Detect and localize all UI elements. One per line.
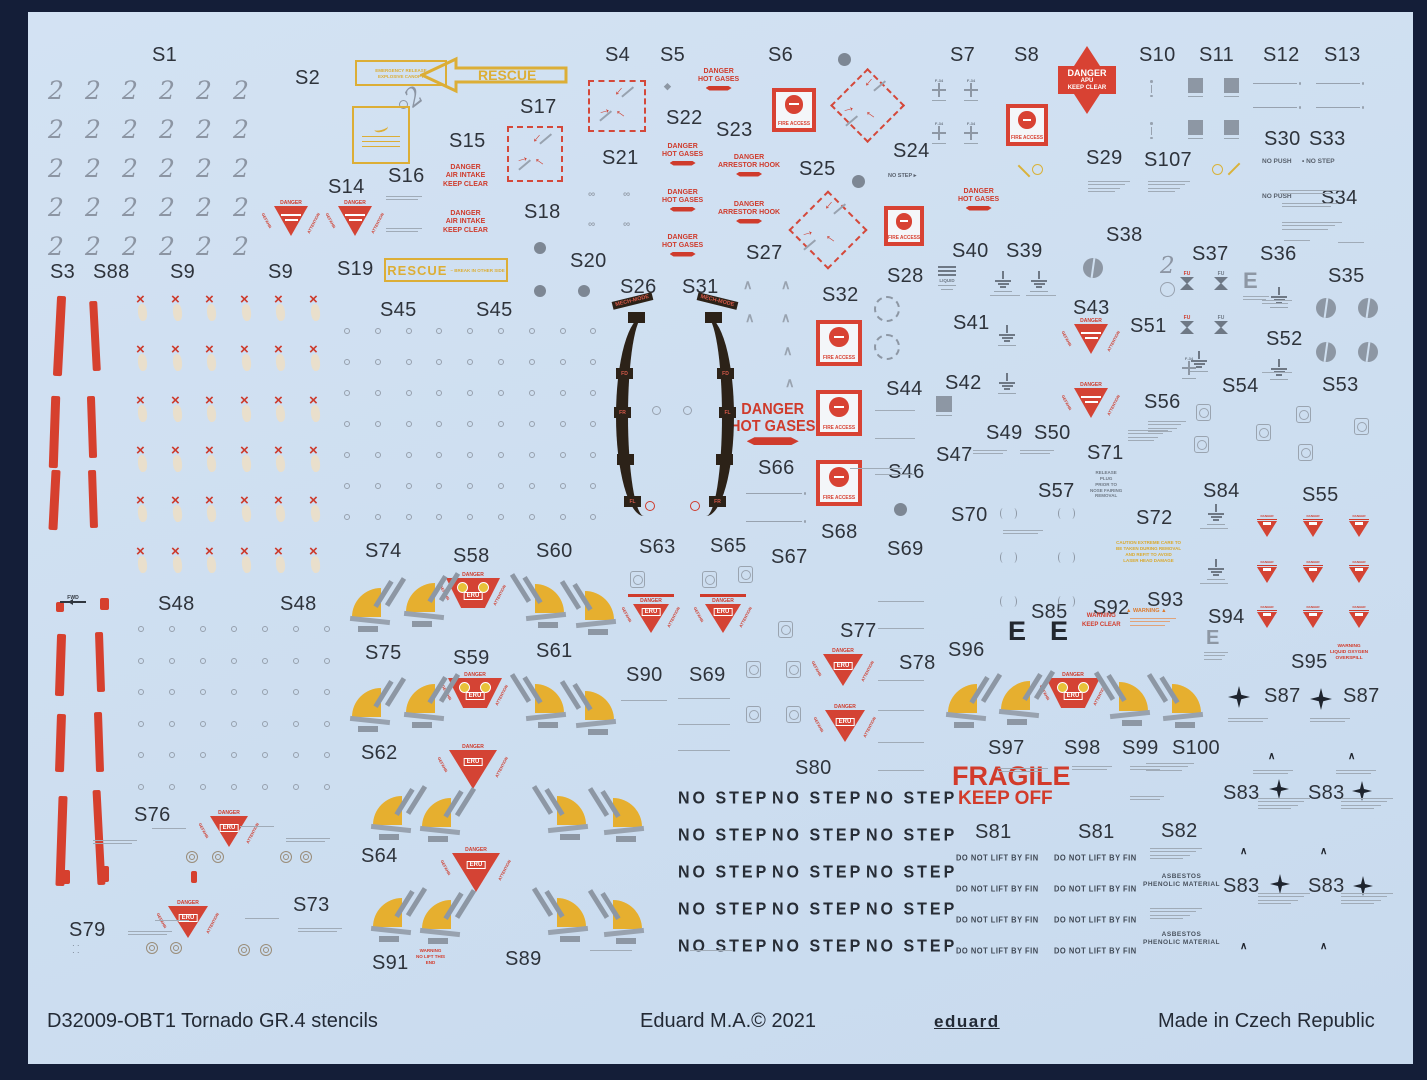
seat-warning-group: [580, 786, 644, 842]
earth-ground-symbol: [1207, 558, 1225, 580]
glyph-marker: ∧: [1320, 841, 1327, 859]
danger-text-stencil: DANGERHOT GASES: [730, 402, 815, 445]
fire-access-marker: FIRE ACCESS: [884, 206, 924, 246]
split-circle-symbol: [1316, 342, 1336, 362]
stencil-text: ▲ WARNING ▲: [1126, 608, 1167, 615]
stencil-text: WARNINGLIQUID OXYGENOVERSPILL: [1330, 644, 1368, 663]
gray-square-marker: [1224, 78, 1239, 97]
stencil-text: NO PUSH: [1262, 158, 1292, 166]
fuel-cross-symbol: F-34: [932, 121, 946, 144]
glyph-marker: ∞: [623, 214, 630, 232]
red-stripe: [100, 598, 109, 610]
valve-outline-symbol: [786, 706, 801, 723]
micro-text-lines: [1148, 181, 1190, 194]
ring-marker: [683, 406, 692, 415]
split-circle-symbol: [1358, 342, 1378, 362]
micro-text-lines: [1310, 718, 1350, 725]
danger-ejection-triangle: DANGERGEFAHRATTENTION: [1068, 318, 1114, 354]
bracket-pair-symbol: [1000, 596, 1017, 607]
micro-text-lines: [286, 838, 330, 845]
line-dot-marker: [1316, 82, 1364, 85]
red-stripe: [55, 296, 64, 376]
valve-outline-symbol: [1256, 424, 1271, 441]
bracket-pair-symbol: [1058, 552, 1075, 563]
star-marker: [1270, 874, 1290, 894]
fwd-arrow: FWD: [60, 595, 86, 603]
split-circle-symbol: [1316, 298, 1336, 318]
danger-text-stencil: DANGERAIR INTAKEKEEP CLEAR: [443, 164, 488, 189]
fire-access-marker: FIRE ACCESS: [772, 88, 816, 132]
star-marker: [1228, 686, 1250, 708]
micro-text-lines: [1282, 222, 1342, 232]
dash-dot-column: [1150, 122, 1153, 139]
line-dot-marker: [746, 520, 806, 523]
gray-square-marker: [1188, 120, 1203, 139]
line-dot-marker: [1253, 82, 1301, 85]
mini-eru-triangle: DANGER: [1256, 514, 1278, 537]
target-ring-marker: [212, 851, 224, 863]
dashed-ring-symbol: [874, 334, 900, 360]
target-ring-marker: [300, 851, 312, 863]
micro-text-lines: [850, 468, 902, 471]
micro-text-lines: [678, 724, 730, 727]
svg-text:RESCUE: RESCUE: [478, 67, 536, 83]
micro-text-lines: [1146, 763, 1194, 773]
micro-text-lines: [240, 826, 274, 829]
micro-text-lines: [152, 828, 186, 831]
micro-text-lines: [1280, 190, 1342, 197]
ring-marker: [1160, 282, 1175, 297]
micro-text-lines: [245, 918, 279, 921]
fire-access-marker: FIRE ACCESS: [1006, 104, 1048, 146]
micro-text-lines: [690, 950, 732, 953]
ring-marker: [645, 501, 655, 511]
micro-text-lines: [1284, 240, 1310, 243]
danger-text-stencil: DANGERHOT GASES: [958, 188, 999, 211]
glyph-marker: ∧: [781, 309, 791, 327]
micro-text-lines: [1228, 718, 1268, 725]
origin-text: Made in Czech Republic: [1158, 1010, 1375, 1033]
micro-text-lines: [1243, 296, 1269, 303]
glyph-marker: ∞: [588, 214, 595, 232]
stencil-text: 2: [1160, 252, 1175, 281]
glyph-marker: ∧: [785, 374, 795, 392]
glyph-marker: ∧: [1348, 746, 1355, 764]
slash-marker: [1016, 170, 1032, 172]
valve-outline-symbol: [1194, 436, 1209, 453]
seat-warning-group: [420, 888, 484, 944]
star-marker: [1269, 779, 1289, 799]
danger-eru-triangle: DANGERGEFAHRATTENTIONERU: [447, 847, 505, 892]
valve-outline-symbol: [1296, 406, 1311, 423]
micro-text-lines: [1200, 528, 1228, 531]
seat-warning-group: [552, 579, 616, 635]
micro-text-lines: [1150, 908, 1202, 921]
micro-text-lines: [875, 410, 915, 413]
glyph-marker: ◆: [664, 76, 671, 94]
danger-text-stencil: DANGERHOT GASES: [662, 189, 703, 212]
seat-warning-group: [552, 679, 616, 735]
mini-eru-triangle: DANGER: [1348, 514, 1370, 537]
micro-text-lines: [875, 474, 915, 477]
micro-text-lines: [386, 228, 422, 235]
line-dot-marker: [1316, 106, 1364, 109]
micro-text-lines: [621, 700, 667, 703]
liquid-marker: LIQUID: [938, 264, 956, 290]
earth-ground-symbol: [998, 372, 1016, 394]
ring-marker: [652, 406, 661, 415]
red-stripe: [91, 301, 99, 371]
brand-logo: eduard: [934, 1012, 1000, 1032]
target-ring-marker: [238, 944, 250, 956]
micro-text-lines: [1020, 450, 1054, 457]
gray-disc-marker: [838, 53, 851, 66]
glyph-marker: ∧: [745, 309, 755, 327]
micro-text-lines: [878, 601, 924, 604]
stencil-text: ASBESTOSPHENOLIC MATERIAL: [1143, 873, 1220, 889]
red-stripe: [191, 871, 197, 883]
micro-text-lines: [1088, 181, 1130, 194]
micro-text-lines: [998, 768, 1048, 775]
micro-text-lines: [128, 931, 172, 938]
glyph-marker: ∧: [781, 276, 791, 294]
micro-text-lines: [973, 450, 1007, 457]
gray-disc-marker: [894, 503, 907, 516]
gray-square-marker: [936, 396, 952, 416]
split-circle-symbol: [1083, 258, 1103, 278]
valve-outline-symbol: [1196, 404, 1211, 421]
mini-eru-triangle: DANGER: [1302, 514, 1324, 537]
copyright-text: Eduard M.A.© 2021: [640, 1010, 816, 1033]
micro-text-lines: [93, 840, 137, 847]
glyph-marker: ∧: [1320, 936, 1327, 954]
danger-eru-triangle: DANGERGEFAHRATTENTIONERU: [628, 594, 674, 633]
danger-ejection-triangle: DANGERGEFAHRATTENTION: [332, 200, 378, 236]
gray-square-marker: [1188, 78, 1203, 97]
micro-text-lines: [875, 438, 915, 441]
target-ring-marker: [170, 942, 182, 954]
stencil-text: KEEP OFF: [958, 787, 1053, 811]
valve-outline-symbol: [778, 621, 793, 638]
fu-hourglass-symbol: FU: [1214, 316, 1228, 334]
danger-ejection-triangle: DANGERGEFAHRATTENTION: [268, 200, 314, 236]
mini-eru-triangle: DANGER: [1302, 605, 1324, 628]
mini-eru-triangle: DANGER: [1256, 605, 1278, 628]
e-stencil-letter: E: [1243, 270, 1257, 292]
gray-disc-marker: [534, 285, 546, 297]
e-stencil-letter: E: [1206, 628, 1218, 648]
stencil-text: RELEASEPLUGPRIOR TONOSE FAIRINGREMOVAL: [1090, 470, 1122, 499]
micro-text-lines: [1253, 770, 1293, 777]
micro-text-lines: [1130, 796, 1164, 803]
danger-eru-triangle: DANGERGEFAHRATTENTIONERU: [820, 704, 870, 742]
dash-dot-column: [1150, 80, 1153, 97]
earth-ground-symbol: [998, 324, 1016, 346]
target-ring-marker: [186, 851, 198, 863]
danger-text-stencil: DANGERHOT GASES: [662, 143, 703, 166]
micro-text-lines: [1026, 295, 1056, 298]
decal-sheet-scan: D32009-OBT1 Tornado GR.4 stencils Eduard…: [0, 0, 1427, 1080]
micro-text-lines: [298, 928, 342, 935]
stencil-text: · ·· ·: [72, 942, 80, 956]
red-stripe: [96, 632, 104, 692]
red-stripe: [56, 634, 65, 696]
seat-warning-group: [524, 886, 588, 942]
mech-mode-arc: MECH-MODEFDFRFL: [612, 306, 672, 521]
earth-ground-symbol: [1030, 270, 1048, 292]
valve-outline-symbol: [630, 571, 645, 588]
micro-text-lines: [678, 698, 730, 701]
seat-warning-group: [999, 669, 1063, 725]
mini-eru-triangle: DANGER: [1348, 560, 1370, 583]
valve-outline-symbol: [1298, 444, 1313, 461]
rescue-arrow: RESCUE: [420, 56, 568, 99]
earth-ground-symbol: [1270, 358, 1288, 380]
red-stripe: [56, 602, 64, 612]
seat-warning-group: [404, 571, 468, 627]
glyph-marker: ∞: [623, 184, 630, 202]
micro-text-lines: [1258, 893, 1310, 906]
gray-square-marker: [1224, 120, 1239, 139]
e-stencil-letter: E: [1008, 618, 1025, 645]
target-ring-marker: [260, 944, 272, 956]
micro-text-lines: [1341, 893, 1393, 906]
fu-hourglass-symbol: FU: [1180, 316, 1194, 334]
fire-access-marker: FIRE ACCESS: [816, 320, 862, 366]
micro-text-lines: [878, 742, 924, 745]
danger-eru-triangle: DANGERGEFAHRATTENTIONERU: [444, 744, 502, 789]
gray-disc-marker: [534, 242, 546, 254]
micro-text-lines: [1003, 530, 1043, 537]
dashed-ring-symbol: [874, 296, 900, 322]
fuel-cross-symbol: F-34: [932, 78, 946, 101]
valve-outline-symbol: [746, 661, 761, 678]
line-dot-marker: [746, 492, 806, 495]
fuel-cross-symbol: F-34: [964, 121, 978, 144]
line-dot-marker: [1253, 106, 1301, 109]
stencil-text: WARNINGKEEP CLEAR: [1082, 612, 1121, 630]
danger-text-stencil: DANGERAIR INTAKEKEEP CLEAR: [443, 210, 488, 235]
red-stripe: [50, 470, 59, 530]
bracket-pair-symbol: [1058, 596, 1075, 607]
fuel-cross-symbol: F-34: [1182, 356, 1196, 379]
mini-eru-triangle: DANGER: [1302, 560, 1324, 583]
micro-text-lines: [1072, 766, 1112, 773]
glyph-marker: ∧: [783, 342, 793, 360]
micro-text-lines: [878, 710, 924, 713]
seat-warning-group: [420, 786, 484, 842]
target-ring-marker: [146, 942, 158, 954]
micro-text-lines: [878, 680, 924, 683]
red-stripe: [101, 866, 109, 882]
red-stripe: [95, 712, 103, 772]
stencil-text: ASBESTOSPHENOLIC MATERIAL: [1143, 931, 1220, 947]
mini-eru-triangle: DANGER: [1256, 560, 1278, 583]
rescue-placard: RESCUE– BREAK IN OTHER SIDE: [384, 258, 508, 282]
valve-outline-symbol: [738, 566, 753, 583]
micro-text-lines: [878, 770, 924, 773]
seat-warning-group: [580, 888, 644, 944]
danger-text-stencil: DANGERARRESTOR HOOK: [718, 154, 780, 177]
ring-marker: [1032, 164, 1043, 175]
bracket-pair-symbol: [1000, 552, 1017, 563]
glyph-marker: ∞: [588, 184, 595, 202]
yellow-placard: [352, 106, 410, 164]
seat-warning-group: [524, 784, 588, 840]
danger-eru-triangle: DANGERGEFAHRATTENTIONERU: [700, 594, 746, 633]
earth-ground-symbol: [994, 270, 1012, 292]
gray-disc-marker: [578, 285, 590, 297]
seat-warning-group: [1139, 672, 1203, 728]
fire-access-marker: FIRE ACCESS: [816, 460, 862, 506]
valve-outline-symbol: [1354, 418, 1369, 435]
micro-text-lines: [1258, 798, 1310, 811]
stencil-text: • NO STEP: [1302, 158, 1335, 166]
fu-hourglass-symbol: FU: [1214, 272, 1228, 290]
bracket-pair-symbol: [1000, 508, 1017, 519]
target-ring-marker: [280, 851, 292, 863]
red-stripe: [61, 870, 70, 884]
micro-text-lines: [678, 750, 730, 753]
red-stripe: [89, 470, 97, 528]
valve-outline-symbol: [746, 706, 761, 723]
valve-outline-symbol: [786, 661, 801, 678]
star-marker: [1310, 688, 1332, 710]
earth-ground-symbol: [1207, 503, 1225, 525]
red-stripe: [50, 396, 59, 468]
micro-text-lines: [1336, 770, 1376, 777]
mini-eru-triangle: DANGER: [1348, 605, 1370, 628]
stencil-text: NO STEP ▸: [888, 173, 916, 180]
micro-text-lines: [1150, 848, 1202, 861]
micro-text-lines: [386, 196, 422, 203]
danger-eru-triangle: DANGERGEFAHRATTENTIONERU: [818, 648, 868, 686]
micro-text-lines: [878, 628, 924, 631]
danger-text-stencil: DANGERHOT GASES: [698, 68, 739, 91]
micro-text-lines: [1282, 203, 1338, 210]
micro-text-lines: [1200, 583, 1228, 586]
danger-text-stencil: DANGERHOT GASES: [662, 234, 703, 257]
micro-text-lines: [1130, 618, 1176, 628]
bracket-pair-symbol: [1058, 508, 1075, 519]
glyph-marker: ∧: [1240, 841, 1247, 859]
fire-access-marker: FIRE ACCESS: [816, 390, 862, 436]
glyph-marker: ∧: [743, 276, 753, 294]
micro-text-lines: [590, 950, 632, 953]
micro-text-lines: [155, 920, 189, 923]
glyph-marker: ∧: [1268, 746, 1275, 764]
micro-text-lines: [1128, 430, 1168, 443]
glyph-marker: ∧: [1240, 936, 1247, 954]
micro-text-lines: [990, 295, 1020, 298]
danger-ejection-triangle: DANGERGEFAHRATTENTION: [1068, 382, 1114, 418]
micro-text-lines: [1341, 798, 1393, 811]
ring-marker: [1212, 164, 1223, 175]
ring-marker: [690, 501, 700, 511]
gray-disc-marker: [852, 175, 865, 188]
micro-text-lines: [1204, 652, 1228, 662]
slash-marker: [1226, 168, 1242, 170]
danger-apu-marker: DANGERAPUKEEP CLEAR: [1058, 46, 1116, 114]
micro-text-lines: [1338, 242, 1364, 245]
micro-text-lines: [1262, 372, 1292, 375]
red-stripe: [88, 396, 96, 458]
decal-layer: D32009-OBT1 Tornado GR.4 stencils Eduard…: [0, 0, 1427, 1080]
fu-hourglass-symbol: FU: [1180, 272, 1194, 290]
valve-outline-symbol: [702, 571, 717, 588]
product-code: D32009-OBT1 Tornado GR.4 stencils: [47, 1010, 378, 1033]
e-stencil-letter: E: [1050, 618, 1067, 645]
danger-text-stencil: DANGERARRESTOR HOOK: [718, 201, 780, 224]
red-stripe: [56, 714, 65, 772]
seat-warning-group: [404, 672, 468, 728]
split-circle-symbol: [1358, 298, 1378, 318]
fuel-cross-symbol: F-34: [964, 78, 978, 101]
stencil-text: WARNINGNO LIFT THISEND: [416, 948, 445, 966]
stencil-text: CAUTION EXTREME CARE TOBE TAKEN DURING R…: [1116, 540, 1181, 563]
